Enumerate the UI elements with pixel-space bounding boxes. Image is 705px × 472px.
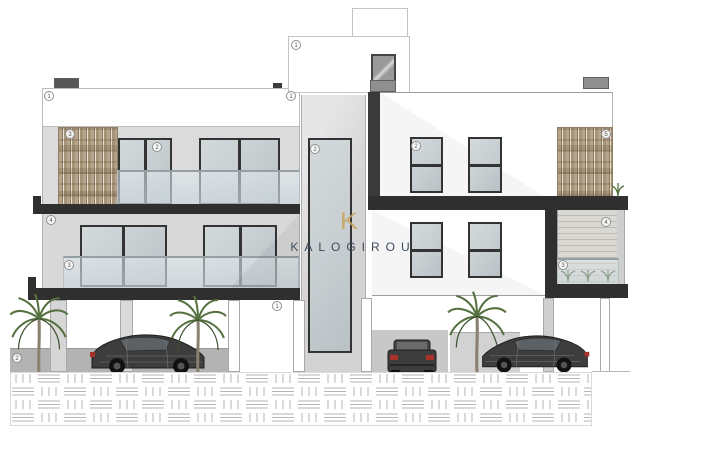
balcony-bottom-slab: [545, 284, 628, 298]
window-mullion: [470, 164, 500, 167]
window-mullion: [412, 164, 441, 167]
right-block-corner-fin: [368, 92, 380, 197]
roof-unit-right-1-icon: [370, 80, 396, 92]
car-side-right-icon: [477, 326, 593, 374]
callout-marker: 5: [601, 129, 611, 139]
roof-unit-right-2-icon: [583, 77, 609, 89]
window-mullion: [470, 249, 500, 252]
left-block-parapet: [42, 88, 300, 127]
callout-marker: 1: [291, 40, 301, 50]
palm-tree-2-icon: [168, 294, 228, 374]
callout-marker: 2: [12, 353, 22, 363]
brand-name: KALOGIROU: [268, 240, 438, 254]
right-lower-window-2: [468, 222, 502, 278]
callout-marker: 4: [46, 215, 56, 225]
stair-bulkhead-roof: [352, 8, 408, 38]
carport-column-7: [600, 298, 610, 372]
callout-marker: 1: [44, 91, 54, 101]
left-wood-slat-screen: [58, 127, 118, 205]
callout-marker: 3: [558, 260, 568, 270]
elevation-drawing: K KALOGIROU 1 1 1 3 2 2 4 3 1 2 2 4 3 5: [0, 0, 705, 472]
callout-marker: 3: [64, 260, 74, 270]
carport-column-3: [228, 300, 240, 372]
callout-marker: 3: [65, 129, 75, 139]
callout-marker: 2: [152, 142, 162, 152]
carport-column-5: [361, 298, 372, 372]
right-upper-window-2: [468, 137, 502, 193]
carport-column-4: [293, 300, 305, 372]
callout-marker: 2: [310, 144, 320, 154]
retaining-wall-hatch: [10, 372, 592, 426]
callout-marker: 1: [272, 301, 282, 311]
callout-marker: 2: [411, 141, 421, 151]
left-lower-glass-balustrade: [63, 256, 299, 288]
callout-marker: 1: [286, 91, 296, 101]
left-mid-slab: [33, 204, 300, 214]
left-upper-glass-balustrade: [117, 170, 300, 205]
right-mid-slab: [368, 196, 628, 210]
car-rear-icon: [386, 338, 438, 376]
callout-marker: 4: [601, 217, 611, 227]
roof-plant-icon: [610, 182, 626, 197]
ground-line-right: [592, 371, 630, 372]
brand-logo-k: K: [340, 208, 358, 236]
